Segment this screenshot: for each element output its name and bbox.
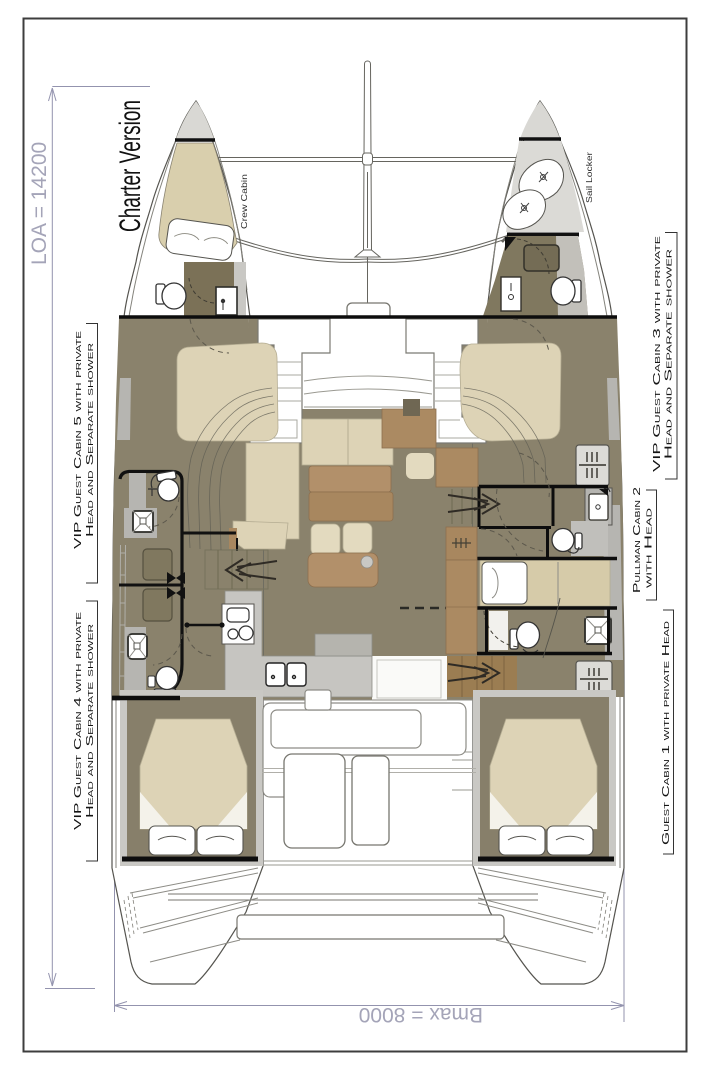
svg-text:Head and Separate shower: Head and Separate shower [663,249,675,459]
svg-text:LOA = 14200: LOA = 14200 [28,142,51,265]
svg-text:Guest Cabin 1 with private Hea: Guest Cabin 1 with private Head [660,621,672,845]
svg-text:Bmax = 8000: Bmax = 8000 [359,1003,483,1026]
svg-text:with Head: with Head [643,508,655,588]
svg-text:Pullman Cabin 2: Pullman Cabin 2 [631,487,643,593]
svg-text:Charter Version: Charter Version [114,100,147,232]
svg-text:Crew Cabin: Crew Cabin [240,174,249,229]
svg-text:Sail Locker: Sail Locker [585,152,594,203]
svg-text:VIP Guest Cabin 4 with private: VIP Guest Cabin 4 with private [72,611,84,830]
svg-text:Head and Separate shower: Head and Separate shower [84,343,96,537]
svg-text:VIP Guest Cabin 5 with private: VIP Guest Cabin 5 with private [72,330,84,549]
svg-text:Head and Separate shower: Head and Separate shower [84,624,96,818]
svg-text:VIP Guest Cabin 3 with private: VIP Guest Cabin 3 with private [651,235,663,472]
